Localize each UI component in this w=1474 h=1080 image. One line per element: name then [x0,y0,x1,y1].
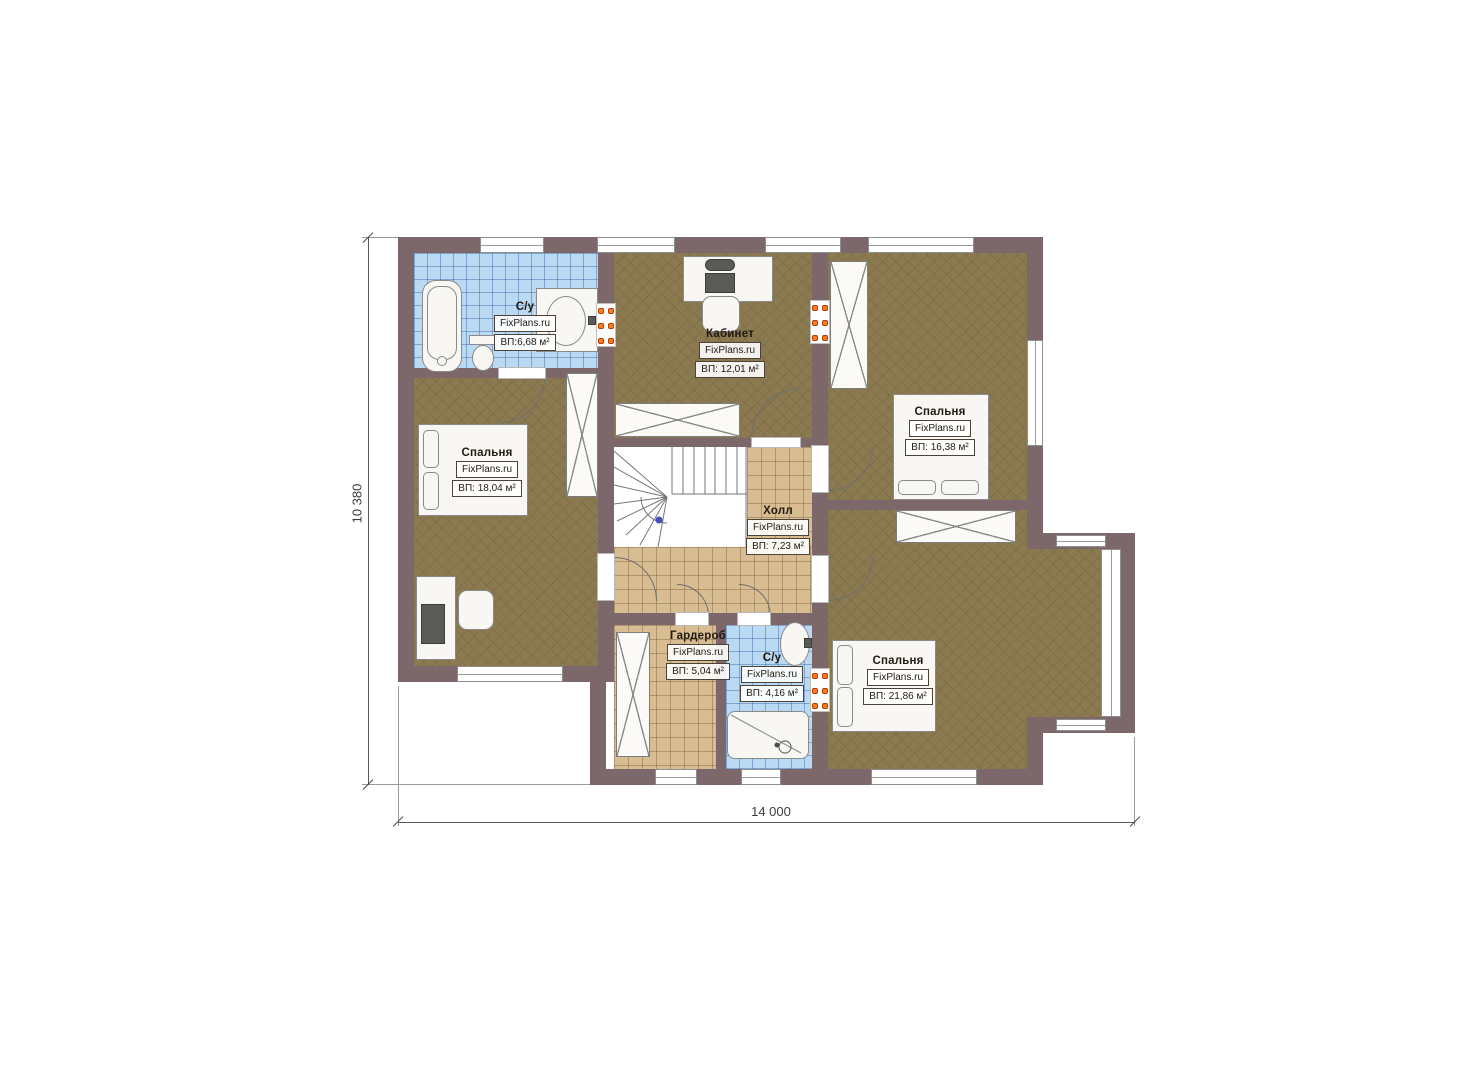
floor-bay-window [1027,549,1105,717]
room-area: ВП: 16,38 м² [905,439,974,456]
window-bay-top [1056,535,1106,547]
window-right [1027,340,1043,446]
room-name: Спальня [461,447,512,459]
room-label-bathroom-top: С/у FixPlans.ru ВП:6,68 м² [487,301,563,351]
wardrobe-bedroom-bottom-right [896,510,1016,543]
window-top-2 [597,237,675,253]
door-bathroom-bottom [737,612,771,626]
computer-office-top [705,259,735,271]
room-label-bathroom-bottom: С/у FixPlans.ru ВП: 4,16 м² [736,652,808,702]
brand-watermark: FixPlans.ru [867,669,929,686]
room-name: С/у [763,652,782,664]
pillow [941,480,979,495]
dimension-line-height [368,237,369,785]
radiator [596,303,616,347]
dimension-height-label: 10 380 [350,472,365,536]
chair-office [702,296,740,332]
brand-watermark: FixPlans.ru [699,342,761,359]
chair-bedroom-left [458,590,494,630]
radiator [810,668,830,712]
wardrobe-cabinet [616,632,650,757]
wall-exterior-left [398,237,414,682]
window-bay-right [1101,549,1121,717]
brand-watermark: FixPlans.ru [741,666,803,683]
room-label-wardrobe: Гардероб FixPlans.ru ВП: 5,04 м² [650,630,746,680]
room-label-bedroom-left: Спальня FixPlans.ru ВП: 18,04 м² [432,447,542,497]
room-label-hall: Холл FixPlans.ru ВП: 7,23 м² [741,505,815,555]
window-left-section-bottom [457,666,563,682]
wardrobe-bedroom-left [566,373,598,497]
stair-level-marker [656,517,663,524]
brand-watermark: FixPlans.ru [909,420,971,437]
door-bedroom-left [597,553,615,601]
room-area: ВП: 5,04 м² [666,663,730,680]
brand-watermark: FixPlans.ru [747,519,809,536]
bathtub-inner [427,286,457,360]
dimension-width-label: 14 000 [726,804,816,819]
closet-office [615,403,740,437]
wardrobe-bedroom-top-right [830,261,868,389]
window-bottom-2 [741,769,781,785]
room-area: ВП: 12,01 м² [695,361,764,378]
room-name: С/у [516,301,535,313]
extension-line [398,686,399,826]
brand-watermark: FixPlans.ru [494,315,556,332]
window-bay-bottom [1056,719,1106,731]
wall-exterior-lower-left [590,666,606,785]
sink-faucet [588,316,596,325]
room-label-bedroom-top-right: Спальня FixPlans.ru ВП: 16,38 м² [892,406,988,456]
room-area: ВП: 4,16 м² [740,685,804,702]
room-area: ВП: 18,04 м² [452,480,521,497]
room-name: Спальня [914,406,965,418]
room-area: ВП:6,68 м² [494,334,555,351]
door-bedroom-bottom-right [811,555,829,603]
pillow [898,480,936,495]
radiator [810,300,830,344]
wall-bay-right [1119,533,1135,733]
room-name: Холл [763,505,793,517]
stairs [614,447,747,547]
bathtub-faucet [437,356,447,366]
wall-corridor-bottom [614,613,812,625]
door-bedroom-top-right [811,445,829,493]
door-wardrobe-room [675,612,709,626]
window-top-4 [868,237,974,253]
door-office [751,437,801,448]
room-area: ВП: 7,23 м² [746,538,810,555]
extension-line [1134,737,1135,826]
sink-bottom-faucet [804,638,812,648]
wall-bedrooms-divider [828,500,1027,510]
room-name: Спальня [872,655,923,667]
brand-watermark: FixPlans.ru [667,644,729,661]
room-name: Кабинет [706,328,754,340]
wall-exterior-right-lower [1027,733,1043,785]
room-area: ВП: 21,86 м² [863,688,932,705]
brand-watermark: FixPlans.ru [456,461,518,478]
room-name: Гардероб [670,630,726,642]
computer-office [705,273,735,293]
door-bathroom-top [498,367,546,379]
window-bottom-1 [655,769,697,785]
extension-line [362,784,592,785]
floor-plan-canvas: С/у FixPlans.ru ВП:6,68 м² Кабинет FixPl… [0,0,1474,1080]
window-top-3 [765,237,841,253]
dimension-line-width [398,822,1135,823]
window-bottom-3 [871,769,977,785]
window-top-1 [480,237,544,253]
computer-bedroom-left [421,604,445,644]
shower-detail [727,711,809,759]
room-label-office: Кабинет FixPlans.ru ВП: 12,01 м² [680,328,780,378]
room-label-bedroom-bottom-right: Спальня FixPlans.ru ВП: 21,86 м² [850,655,946,705]
